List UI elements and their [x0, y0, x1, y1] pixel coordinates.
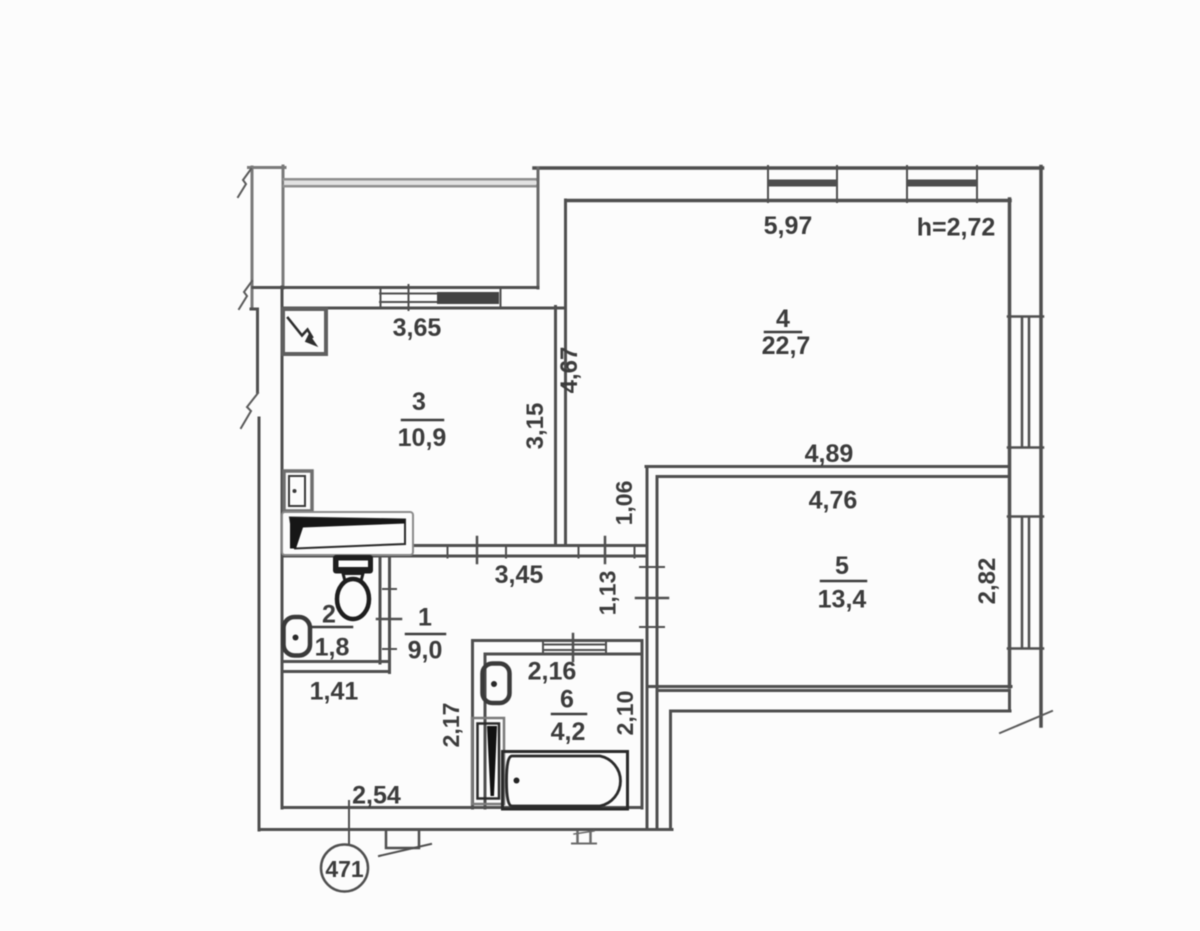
svg-text:6: 6 [560, 686, 574, 714]
svg-text:4,76: 4,76 [809, 487, 858, 515]
svg-text:4,67: 4,67 [556, 347, 583, 394]
svg-text:3,45: 3,45 [495, 561, 544, 589]
svg-text:2,16: 2,16 [528, 658, 577, 686]
svg-text:2: 2 [322, 601, 336, 629]
svg-text:471: 471 [325, 856, 364, 882]
svg-text:1,8: 1,8 [315, 634, 350, 662]
svg-text:5: 5 [835, 552, 849, 580]
svg-text:3: 3 [412, 388, 426, 416]
svg-text:22,7: 22,7 [762, 332, 811, 360]
svg-text:1: 1 [418, 604, 432, 632]
svg-text:h=2,72: h=2,72 [917, 214, 996, 242]
svg-text:1,41: 1,41 [310, 678, 359, 706]
svg-text:3,15: 3,15 [522, 403, 549, 450]
svg-text:2,54: 2,54 [352, 782, 401, 810]
svg-text:9,0: 9,0 [408, 637, 443, 665]
svg-text:1,13: 1,13 [595, 571, 621, 616]
svg-text:2,10: 2,10 [612, 691, 638, 736]
svg-text:13,4: 13,4 [818, 586, 867, 614]
svg-text:4: 4 [776, 305, 790, 333]
svg-text:5,97: 5,97 [764, 212, 813, 240]
svg-text:4,89: 4,89 [805, 440, 854, 468]
svg-text:3,65: 3,65 [393, 314, 442, 342]
svg-text:2,17: 2,17 [438, 703, 464, 748]
svg-text:4,2: 4,2 [551, 718, 586, 746]
svg-text:1,06: 1,06 [611, 481, 637, 526]
svg-text:2,82: 2,82 [974, 558, 1001, 605]
svg-text:10,9: 10,9 [398, 424, 447, 452]
